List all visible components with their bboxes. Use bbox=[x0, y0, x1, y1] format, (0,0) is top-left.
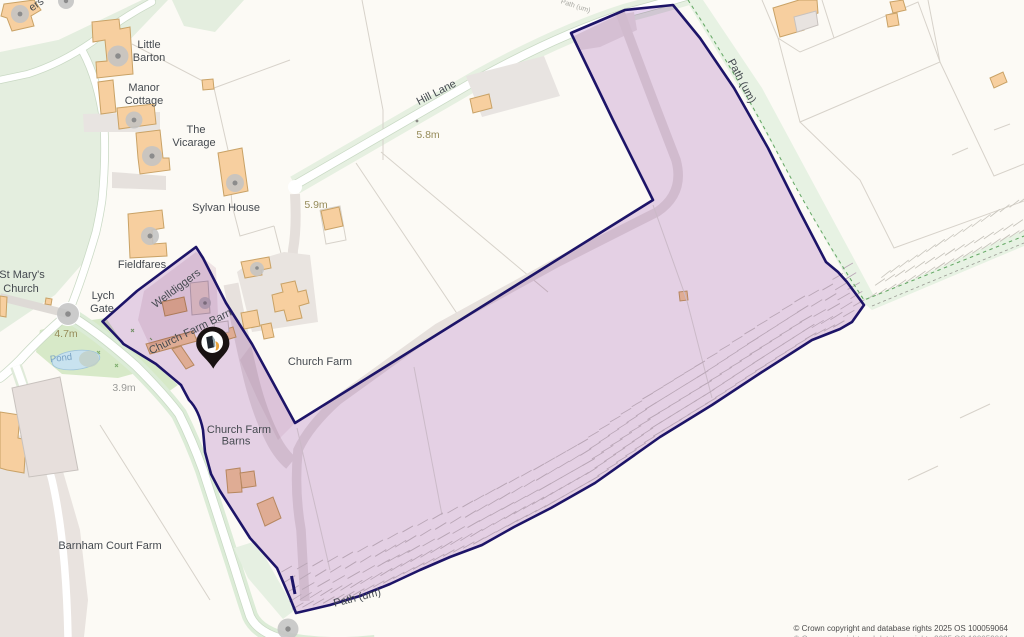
svg-text:4.7m: 4.7m bbox=[54, 328, 78, 340]
svg-text:Fieldfares: Fieldfares bbox=[118, 259, 167, 271]
svg-text:The: The bbox=[187, 124, 206, 136]
svg-text:St Mary's: St Mary's bbox=[0, 269, 45, 281]
svg-text:Church Farm: Church Farm bbox=[288, 356, 352, 368]
svg-text:5.8m: 5.8m bbox=[416, 129, 440, 141]
svg-text:Manor: Manor bbox=[128, 82, 160, 94]
svg-text:Sylvan House: Sylvan House bbox=[192, 202, 260, 214]
svg-text:Church: Church bbox=[3, 283, 38, 295]
svg-text:Little: Little bbox=[137, 39, 160, 51]
svg-text:Gate: Gate bbox=[90, 303, 114, 315]
svg-text:Lych: Lych bbox=[92, 290, 115, 302]
svg-text:5.9m: 5.9m bbox=[304, 199, 328, 211]
svg-text:Vicarage: Vicarage bbox=[172, 137, 215, 149]
svg-text:Barnham Court Farm: Barnham Court Farm bbox=[58, 540, 161, 552]
svg-text:© Crown copyright and database: © Crown copyright and database rights 20… bbox=[794, 624, 1009, 633]
svg-text:3.9m: 3.9m bbox=[112, 382, 136, 394]
svg-text:Barns: Barns bbox=[222, 436, 251, 448]
svg-text:Church Farm: Church Farm bbox=[207, 424, 271, 436]
svg-text:Barton: Barton bbox=[133, 52, 165, 64]
svg-text:Cottage: Cottage bbox=[125, 95, 164, 107]
